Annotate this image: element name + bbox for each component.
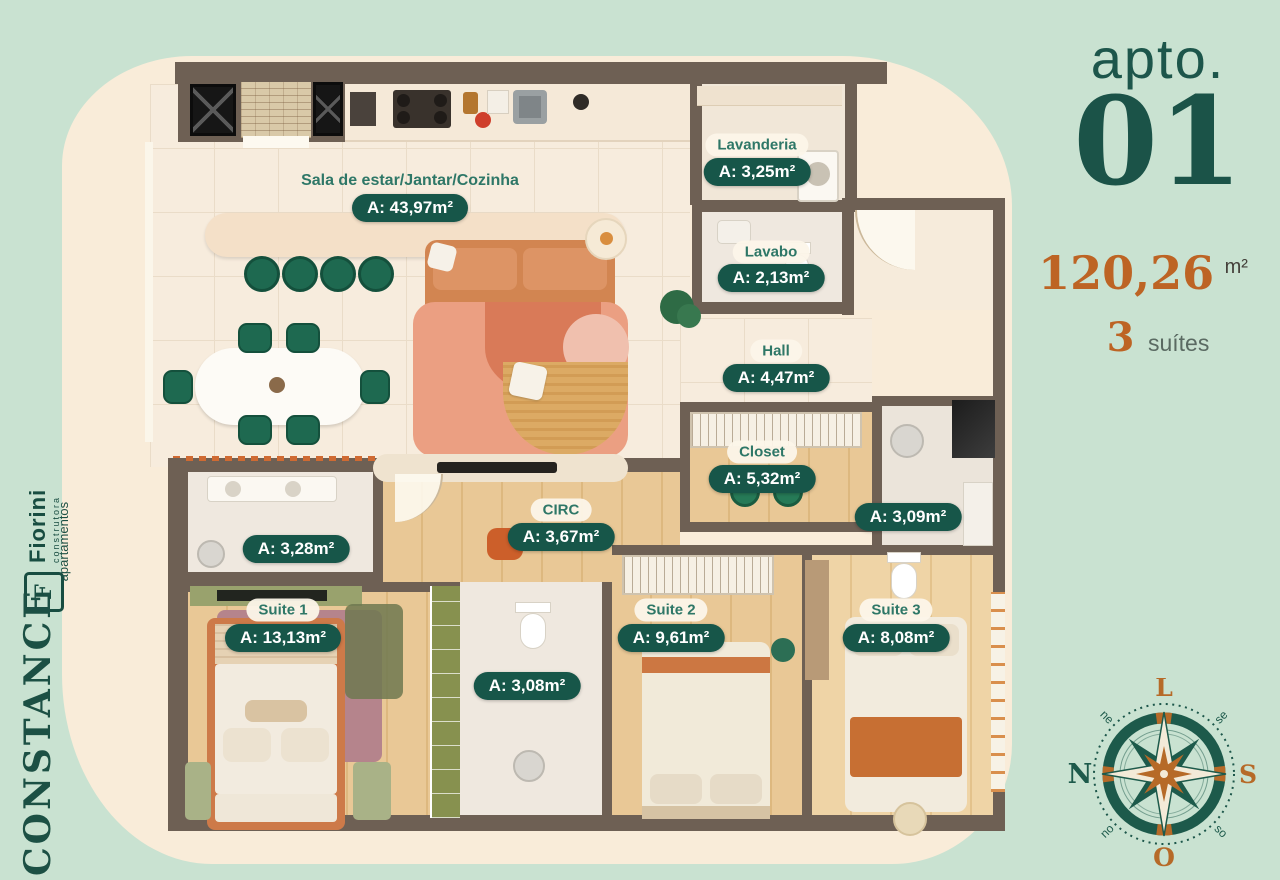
page: { "colors":{"mint_bg":"#c9e2d1","cream_p… xyxy=(0,0,1280,880)
room-name-label: Suite 1 xyxy=(246,599,319,622)
room-name-label: Sala de estar/Jantar/Cozinha xyxy=(301,172,519,190)
room-area-badge: A: 4,47m² xyxy=(723,364,830,392)
room-area-badge: A: 13,13m² xyxy=(225,624,341,652)
room-area-badge: A: 3,25m² xyxy=(704,158,811,186)
compass-se: se xyxy=(1212,707,1231,726)
compass-so: so xyxy=(1212,822,1231,841)
floor-plan: Sala de estar/Jantar/CozinhaA: 43,97m²La… xyxy=(145,62,1005,835)
project-logo: CONSTANCE apartamentos xyxy=(20,502,71,876)
room-area-badge: A: 8,08m² xyxy=(843,624,950,652)
suites-label: suítes xyxy=(1148,330,1209,356)
compass-no: no xyxy=(1097,821,1117,841)
room-area-badge: A: 3,09m² xyxy=(855,503,962,531)
compass-rose: L S O N ne se so no xyxy=(1068,678,1260,870)
compass-south: S xyxy=(1239,760,1257,789)
suites-info: 3 suítes xyxy=(1048,314,1268,361)
apartment-number: 01 xyxy=(1048,74,1268,208)
room-name-label: Closet xyxy=(727,441,797,464)
room-area-badge: A: 2,13m² xyxy=(718,264,825,292)
project-name: CONSTANCE xyxy=(20,588,56,876)
room-name-label: Suite 3 xyxy=(859,599,932,622)
project-tagline: apartamentos xyxy=(56,502,71,582)
compass-east: L xyxy=(1155,678,1173,702)
compass-west: O xyxy=(1153,843,1175,870)
room-area-badge: A: 5,32m² xyxy=(709,465,816,493)
total-area-value: 120,26 xyxy=(1038,246,1214,300)
suites-count: 3 xyxy=(1107,314,1135,361)
total-area-unit: m² xyxy=(1225,256,1248,278)
room-area-badge: A: 3,28m² xyxy=(243,535,350,563)
room-name-label: Suite 2 xyxy=(634,599,707,622)
room-name-label: Lavanderia xyxy=(705,134,808,157)
floor-plan-labels: Sala de estar/Jantar/CozinhaA: 43,97m²La… xyxy=(145,62,1005,835)
room-name-label: CIRC xyxy=(531,499,592,522)
total-area: 120,26 m² xyxy=(1018,246,1268,300)
room-name-label: Lavabo xyxy=(733,241,810,264)
compass-north: N xyxy=(1068,759,1092,790)
room-area-badge: A: 3,08m² xyxy=(474,672,581,700)
room-area-badge: A: 43,97m² xyxy=(352,194,468,222)
room-area-badge: A: 9,61m² xyxy=(618,624,725,652)
room-name-label: Hall xyxy=(750,340,802,363)
room-area-badge: A: 3,67m² xyxy=(508,523,615,551)
